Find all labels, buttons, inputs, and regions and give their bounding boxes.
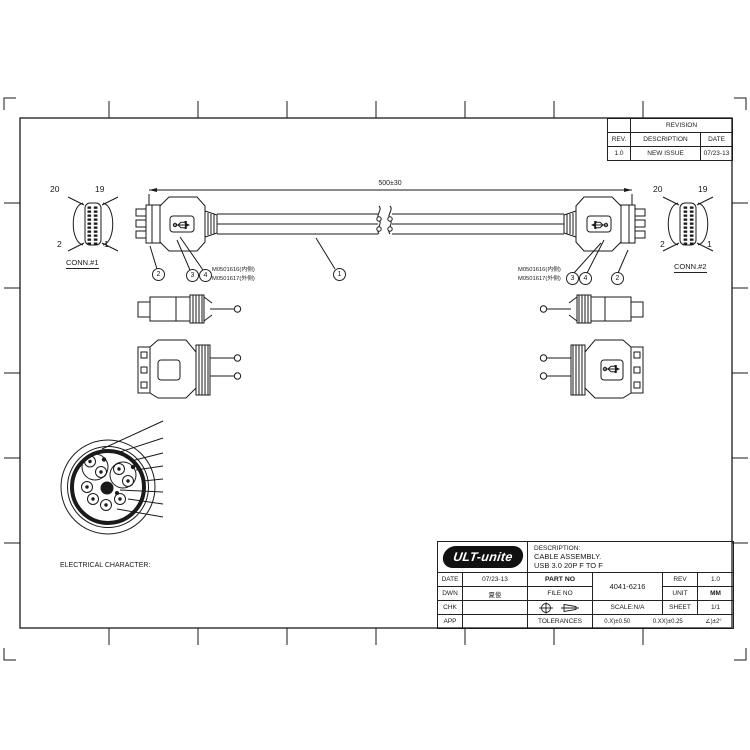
balloon-3-number: 3 <box>191 272 195 279</box>
balloon-3: 3 <box>186 269 199 282</box>
cable <box>217 206 564 234</box>
pin-contacts <box>88 207 98 245</box>
overmold-top-view <box>136 197 217 251</box>
connector-left-views <box>68 197 241 398</box>
balloon-2: 2 <box>152 268 165 281</box>
wire-diagram <box>240 318 430 618</box>
side-view-large <box>138 340 241 398</box>
balloon-4: 4 <box>199 269 212 282</box>
balloon-2-right-number: 2 <box>616 275 620 282</box>
balloon-4-right: 4 <box>579 272 592 285</box>
cable-break-symbol <box>377 206 392 234</box>
balloon-3-right: 3 <box>566 272 579 285</box>
balloon-3-right-number: 3 <box>571 275 575 282</box>
connector-right-views <box>540 197 713 398</box>
balloon-1-number: 1 <box>338 271 342 278</box>
cable-cross-section <box>61 440 155 534</box>
balloon-leaders <box>150 237 628 273</box>
engineering-drawing-sheet: { "sheet": {"bg": "#ffffff", "line_color… <box>0 0 750 750</box>
balloon-4-right-number: 4 <box>584 275 588 282</box>
dimension-line <box>149 188 632 205</box>
conn1-face-view <box>68 197 118 251</box>
balloon-4-number: 4 <box>204 272 208 279</box>
balloon-1: 1 <box>333 268 346 281</box>
balloon-2-right: 2 <box>611 272 624 285</box>
side-view-small <box>138 295 241 323</box>
usb-trident-right-sideview <box>603 365 620 373</box>
balloon-2-number: 2 <box>157 271 161 278</box>
